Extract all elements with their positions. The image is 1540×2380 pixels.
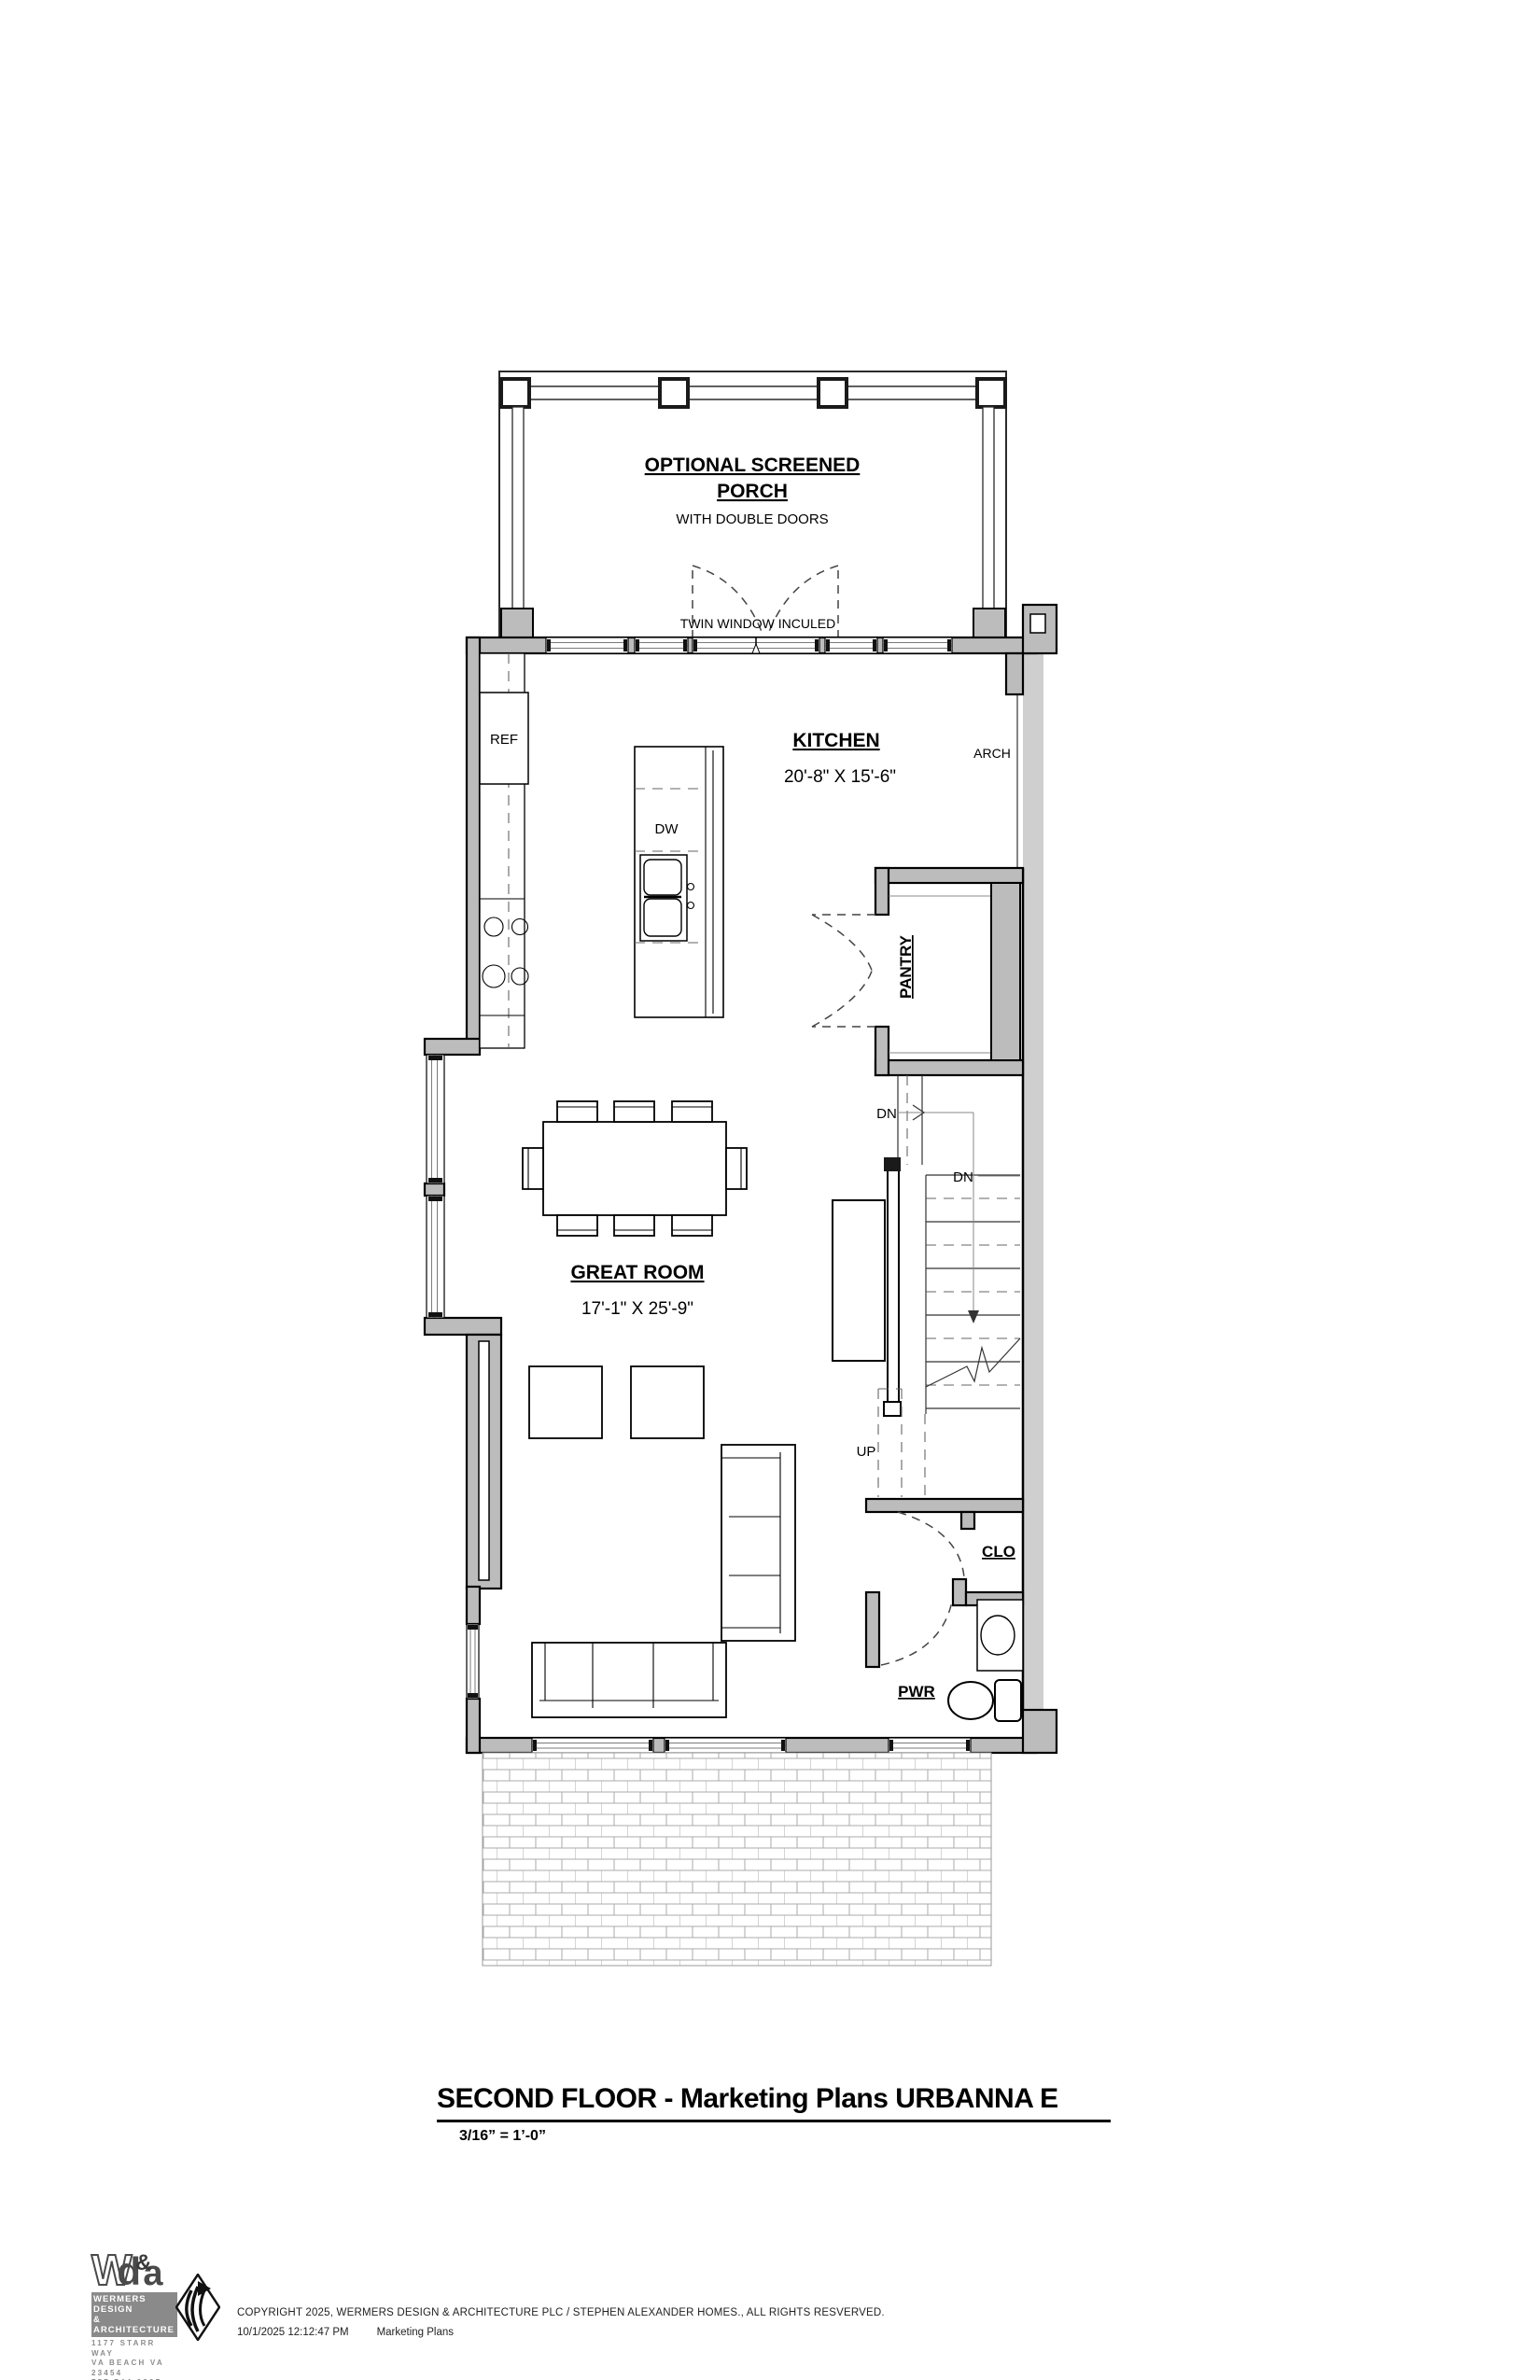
- pantry-label: PANTRY: [897, 934, 915, 999]
- up-label: UP: [857, 1444, 876, 1460]
- document-name: Marketing Plans: [377, 2327, 454, 2338]
- ottoman: [529, 1366, 602, 1438]
- dining-table: [523, 1101, 747, 1236]
- sheet-scale: 3/16” = 1’-0”: [459, 2128, 546, 2145]
- arch-label: ARCH: [973, 746, 1011, 761]
- logo-ampersand: &: [135, 2250, 151, 2275]
- kitchen-counter: [480, 653, 528, 1048]
- builder-logo-icon: [175, 2274, 220, 2341]
- firm-address-line2: VA BEACH VA 23454: [91, 2359, 177, 2378]
- sofa-right: [721, 1445, 795, 1641]
- dining-chair: [557, 1215, 597, 1236]
- plot-timestamp: 10/1/2025 12:12:47 PM: [237, 2327, 349, 2338]
- dn-lower-label: DN: [953, 1169, 973, 1185]
- firm-name-line2: & ARCHITECTURE: [93, 2315, 175, 2335]
- floor-plan-drawing: OPTIONAL SCREENED PORCH WITH DOUBLE DOOR…: [0, 0, 1540, 2380]
- porch-post: [977, 379, 1005, 407]
- firm-name-line1: WERMERS DESIGN: [93, 2294, 175, 2315]
- porch-post: [819, 379, 847, 407]
- firm-logo-letters: Wd&a: [91, 2247, 177, 2292]
- firm-address-line1: 1177 STARR WAY: [91, 2339, 177, 2359]
- porch-subtitle: WITH DOUBLE DOORS: [676, 511, 828, 527]
- dining-chair: [614, 1215, 654, 1236]
- pantry-double-door: [812, 915, 875, 1027]
- party-wall: [1017, 605, 1043, 1753]
- twin-window-note: TWIN WINDOW INCULED: [680, 616, 835, 631]
- closet-powder-walls: [866, 1499, 1023, 1721]
- twin-window: [693, 637, 819, 653]
- kitchen-dimensions: 20'-8" X 15'-6": [784, 767, 896, 787]
- porch-label-line1: OPTIONAL SCREENED: [645, 455, 861, 476]
- living-furniture: [529, 1366, 795, 1717]
- console-table: [833, 1200, 885, 1361]
- dn-upper-label: DN: [876, 1106, 897, 1122]
- firm-name-band: WERMERS DESIGN & ARCHITECTURE: [91, 2292, 177, 2337]
- closet-door: [898, 1512, 964, 1577]
- sheet-title-block: SECOND FLOOR - Marketing Plans URBANNA E: [437, 2083, 1111, 2122]
- sheet-footer: COPYRIGHT 2025, WERMERS DESIGN & ARCHITE…: [237, 2307, 885, 2338]
- dining-chair: [672, 1101, 712, 1122]
- dining-chair: [672, 1215, 712, 1236]
- dining-chair: [557, 1101, 597, 1122]
- kitchen-label: KITCHEN: [792, 730, 879, 751]
- sheet-title: SECOND FLOOR - Marketing Plans URBANNA E: [437, 2083, 1111, 2115]
- dw-label: DW: [655, 821, 679, 837]
- floor-plan-sheet: OPTIONAL SCREENED PORCH WITH DOUBLE DOOR…: [0, 0, 1540, 2380]
- island-sink: [640, 855, 694, 941]
- plot-info-line: 10/1/2025 12:12:47 PMMarketing Plans: [237, 2327, 885, 2338]
- screened-porch: [499, 371, 1006, 642]
- firm-logo: Wd&a WERMERS DESIGN & ARCHITECTURE 1177 …: [91, 2247, 177, 2380]
- porch-corner-post: [973, 609, 1005, 640]
- vanity-sink: [977, 1600, 1023, 1671]
- porch-post: [660, 379, 688, 407]
- dining-chair: [523, 1148, 543, 1189]
- brick-patio: [483, 1753, 991, 1966]
- ottoman: [631, 1366, 704, 1438]
- porch-label-line2: PORCH: [717, 481, 788, 502]
- closet-label: CLO: [982, 1543, 1015, 1561]
- porch-post: [501, 379, 529, 407]
- pantry-chase: [991, 883, 1020, 1060]
- dining-chair: [726, 1148, 747, 1189]
- sofa-bottom: [532, 1643, 726, 1717]
- pantry-walls: [812, 868, 1023, 1075]
- stair-railing: [888, 1169, 899, 1404]
- toilet: [948, 1680, 1021, 1721]
- great-room-dimensions: 17'-1" X 25'-9": [581, 1299, 693, 1319]
- great-room-label: GREAT ROOM: [570, 1262, 704, 1283]
- powder-door: [881, 1602, 952, 1665]
- dining-chair: [614, 1101, 654, 1122]
- powder-label: PWR: [898, 1683, 935, 1701]
- firm-address: 1177 STARR WAY VA BEACH VA 23454 757.744…: [91, 2339, 177, 2380]
- porch-corner-post: [501, 609, 533, 640]
- ref-label: REF: [490, 732, 518, 748]
- copyright-line: COPYRIGHT 2025, WERMERS DESIGN & ARCHITE…: [237, 2307, 885, 2318]
- kitchen-island: [635, 747, 723, 1017]
- stairs: [833, 1075, 1020, 1497]
